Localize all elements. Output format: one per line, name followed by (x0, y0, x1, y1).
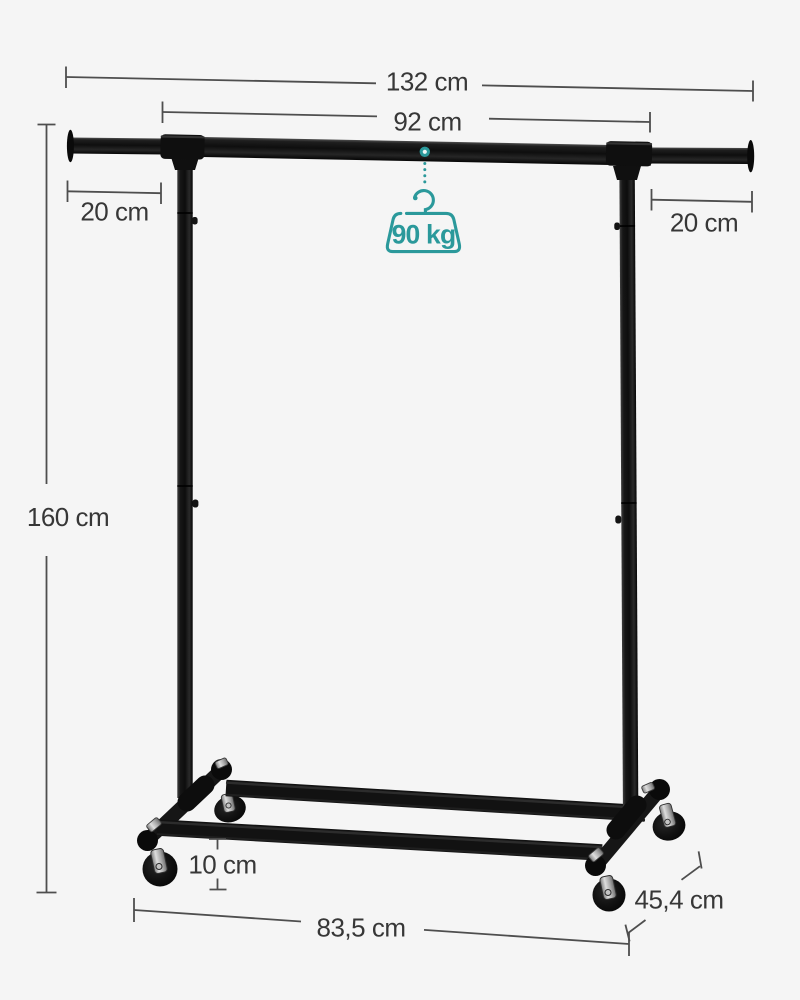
svg-text:160 cm: 160 cm (27, 502, 109, 532)
svg-text:132 cm: 132 cm (386, 67, 468, 97)
svg-text:10 cm: 10 cm (188, 850, 256, 880)
svg-text:83,5 cm: 83,5 cm (317, 913, 406, 943)
svg-text:20 cm: 20 cm (80, 197, 148, 227)
svg-text:90 kg: 90 kg (392, 220, 456, 250)
svg-text:92 cm: 92 cm (393, 107, 461, 137)
svg-text:20 cm: 20 cm (670, 208, 738, 238)
svg-text:45,4 cm: 45,4 cm (635, 885, 724, 915)
